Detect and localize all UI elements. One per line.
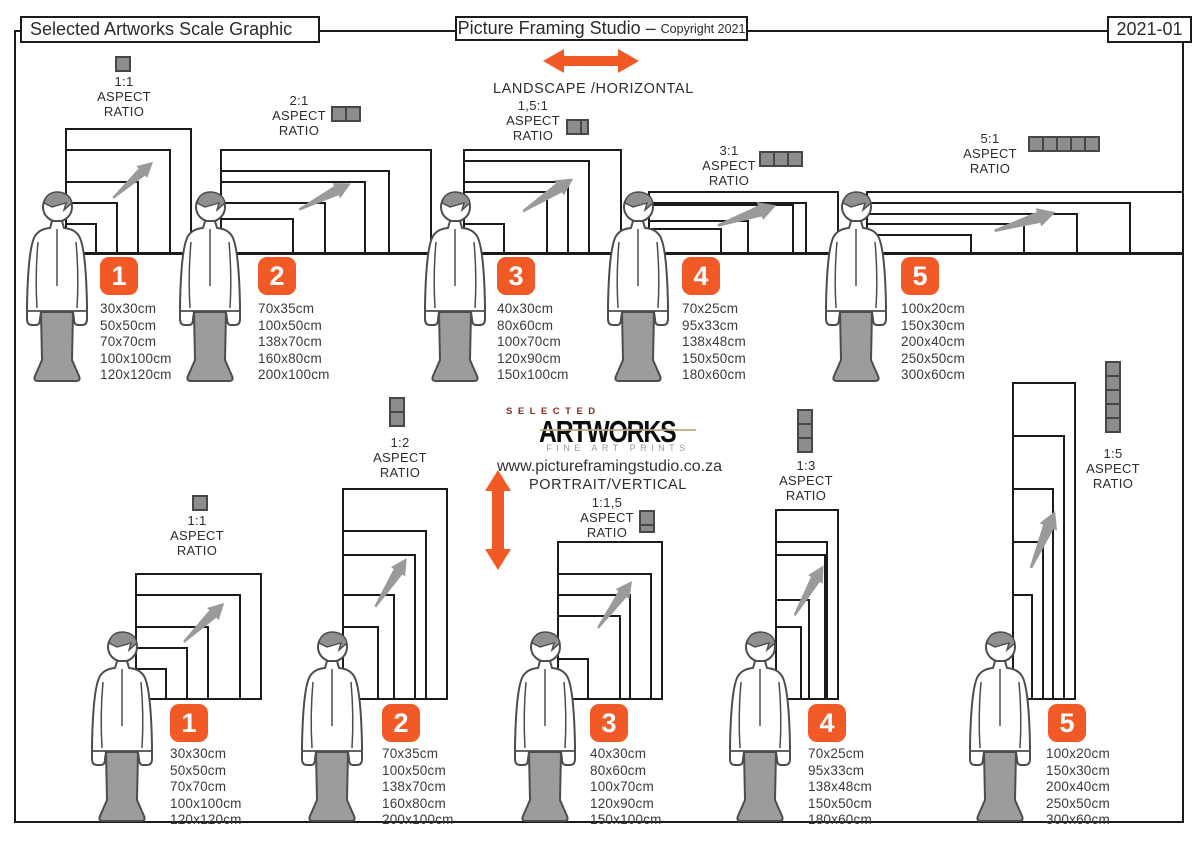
gray-square-icon	[389, 397, 405, 427]
copyright-text: Copyright 2021	[661, 22, 746, 36]
group-number-badge: 1	[100, 257, 138, 295]
aspect-ratio-label: 1:3 ASPECTRATIO	[746, 459, 866, 503]
aspect-ratio-label: 1:5 ASPECTRATIO	[1053, 447, 1173, 491]
aspect-ratio-label: 1:1 ASPECTRATIO	[64, 75, 184, 119]
aspect-ratio-label: 1:1 ASPECTRATIO	[137, 514, 257, 558]
doc-number-box: 2021-01	[1107, 16, 1192, 43]
size-list: 40x30cm80x60cm100x70cm120x90cm150x100cm	[590, 746, 662, 829]
person-silhouette-icon	[602, 190, 674, 386]
group-number-badge: 3	[497, 257, 535, 295]
size-list: 100x20cm150x30cm200x40cm250x50cm300x60cm	[1046, 746, 1110, 829]
website-url-text: www.pictureframingstudio.co.za	[497, 458, 719, 476]
group-number-badge: 2	[258, 257, 296, 295]
gray-square-icon	[1105, 361, 1121, 433]
size-list: 70x35cm100x50cm138x70cm160x80cm200x100cm	[382, 746, 454, 829]
page-title: Selected Artworks Scale Graphic	[30, 19, 292, 40]
aspect-ratio-label: 3:1 ASPECTRATIO	[669, 144, 789, 188]
unit-square	[115, 56, 131, 72]
group-number-badge: 1	[170, 704, 208, 742]
size-list: 30x30cm50x50cm70x70cm100x100cm120x120cm	[100, 301, 172, 384]
studio-title: Picture Framing Studio –	[458, 18, 656, 39]
size-list: 100x20cm150x30cm200x40cm250x50cm300x60cm	[901, 301, 965, 384]
logo-streak-line	[540, 429, 696, 431]
aspect-ratio-label: 5:1 ASPECTRATIO	[930, 132, 1050, 176]
double-horizontal-arrow-icon	[543, 47, 639, 75]
person-silhouette-icon	[964, 630, 1036, 826]
aspect-ratio-label: 1:2 ASPECTRATIO	[340, 436, 460, 480]
size-list: 70x25cm95x33cm138x48cm150x50cm180x60cm	[808, 746, 872, 829]
gray-square-icon	[192, 495, 208, 511]
size-list: 40x30cm80x60cm100x70cm120x90cm150x100cm	[497, 301, 569, 384]
person-silhouette-icon	[724, 630, 796, 826]
person-silhouette-icon	[419, 190, 491, 386]
person-silhouette-icon	[296, 630, 368, 826]
aspect-ratio-label: 1:1,5 ASPECTRATIO	[547, 496, 667, 540]
logo-tagline-text: FINE ART PRINTS	[540, 443, 696, 453]
gray-square-icon	[115, 56, 131, 72]
person-silhouette-icon	[509, 630, 581, 826]
double-vertical-arrow-icon	[483, 470, 513, 570]
aspect-ratio-label: 1,5:1 ASPECTRATIO	[473, 99, 593, 143]
person-silhouette-icon	[174, 190, 246, 386]
group-number-badge: 4	[808, 704, 846, 742]
person-silhouette-icon	[86, 630, 158, 826]
group-number-badge: 4	[682, 257, 720, 295]
person-silhouette-icon	[820, 190, 892, 386]
group-number-badge: 2	[382, 704, 420, 742]
aspect-ratio-label: 2:1 ASPECTRATIO	[239, 94, 359, 138]
group-number-badge: 5	[901, 257, 939, 295]
person-silhouette-icon	[21, 190, 93, 386]
title-left-box: Selected Artworks Scale Graphic	[20, 16, 320, 43]
title-center-box: Picture Framing Studio – Copyright 2021	[455, 16, 748, 41]
size-list: 70x25cm95x33cm138x48cm150x50cm180x60cm	[682, 301, 746, 384]
doc-number: 2021-01	[1116, 19, 1182, 40]
landscape-section-label: LANDSCAPE /HORIZONTAL	[493, 81, 693, 97]
scale-graphic-page: Selected Artworks Scale Graphic Picture …	[0, 0, 1200, 842]
group-number-badge: 5	[1048, 704, 1086, 742]
size-list: 30x30cm50x50cm70x70cm100x100cm120x120cm	[170, 746, 242, 829]
group-number-badge: 3	[590, 704, 628, 742]
gray-square-icon	[797, 409, 813, 453]
size-list: 70x35cm100x50cm138x70cm160x80cm200x100cm	[258, 301, 330, 384]
portrait-section-label: PORTRAIT/VERTICAL	[508, 477, 708, 493]
